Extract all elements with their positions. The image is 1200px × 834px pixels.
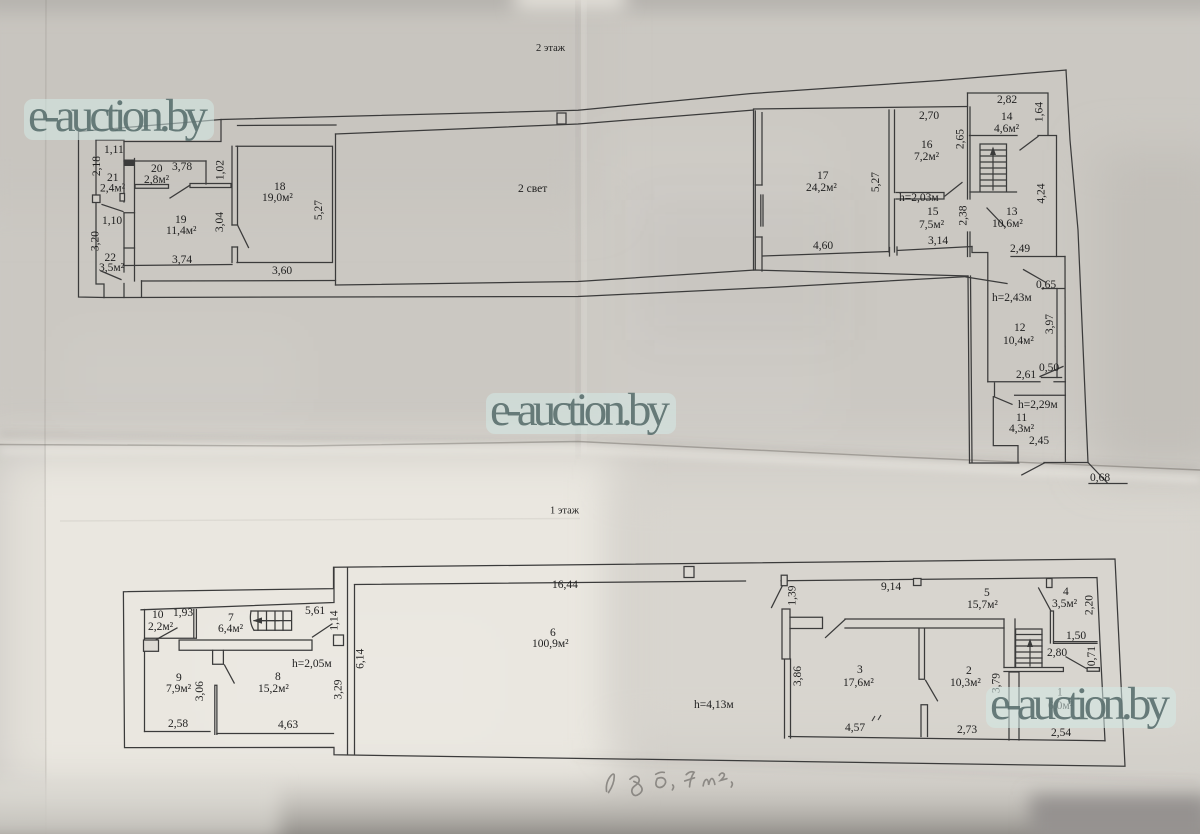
svg-text:15: 15 [927,206,939,218]
svg-text:h=2,29м: h=2,29м [1018,399,1058,411]
svg-text:17: 17 [817,170,829,182]
svg-text:5: 5 [984,587,990,599]
svg-text:3,14: 3,14 [928,235,948,247]
svg-text:4,3м²: 4,3м² [1009,423,1035,435]
svg-text:1,93: 1,93 [173,607,193,619]
svg-text:10,6м²: 10,6м² [992,218,1023,230]
svg-text:2 этаж: 2 этаж [536,43,566,54]
svg-text:16,44: 16,44 [552,579,578,591]
svg-text:0,65: 0,65 [1036,279,1056,291]
svg-text:4,6м²: 4,6м² [994,123,1020,135]
svg-text:3,60: 3,60 [272,265,292,277]
svg-text:2 свет: 2 свет [518,183,547,195]
svg-text:h=2,05м: h=2,05м [292,658,332,670]
svg-text:h=2,43м: h=2,43м [992,292,1032,304]
svg-text:2,49: 2,49 [1010,243,1030,255]
svg-text:17,6м²: 17,6м² [843,677,874,689]
svg-text:2,45: 2,45 [1029,435,1049,447]
svg-text:2,61: 2,61 [1016,369,1036,381]
svg-text:13: 13 [1006,206,1018,218]
svg-text:16: 16 [921,139,933,151]
svg-text:15,2м²: 15,2м² [258,683,289,695]
svg-text:3: 3 [857,664,863,676]
svg-text:6,4м²: 6,4м² [218,623,244,635]
svg-text:19,0м²: 19,0м² [262,192,293,204]
svg-text:5,61: 5,61 [305,605,325,617]
svg-text:2: 2 [966,665,972,677]
svg-text:2,18: 2,18 [91,156,103,176]
svg-text:8: 8 [275,671,281,683]
svg-text:2,20: 2,20 [1083,595,1095,615]
svg-text:10,4м²: 10,4м² [1003,335,1034,347]
svg-text:6,14: 6,14 [355,648,367,668]
svg-text:15,7м²: 15,7м² [967,599,998,611]
svg-text:1,11: 1,11 [104,144,124,156]
svg-text:11,4м²: 11,4м² [166,225,197,237]
svg-text:24,2м²: 24,2м² [806,182,837,194]
svg-text:1,02: 1,02 [215,160,227,180]
svg-text:4,24: 4,24 [1036,183,1048,203]
svg-text:3,29: 3,29 [333,679,345,699]
svg-text:7,5м²: 7,5м² [919,219,945,231]
svg-text:e-auction.by: e-auction.by [990,678,1171,730]
svg-text:3,78: 3,78 [172,161,192,173]
svg-text:0,50: 0,50 [1039,362,1059,374]
svg-text:1 этаж: 1 этаж [550,506,580,517]
svg-text:3,74: 3,74 [172,254,192,266]
svg-text:e-auction.by: e-auction.by [490,384,671,436]
svg-text:3,5м²: 3,5м² [99,262,125,274]
svg-text:100,9м²: 100,9м² [532,638,569,650]
svg-text:2,2м²: 2,2м² [148,621,174,633]
svg-text:2,8м²: 2,8м² [144,174,170,186]
svg-text:h=4,13м: h=4,13м [694,699,734,711]
svg-text:2,58: 2,58 [168,718,188,730]
svg-text:4,60: 4,60 [813,240,833,252]
svg-text:4,63: 4,63 [278,719,298,731]
svg-text:2,73: 2,73 [957,724,977,736]
svg-text:10,3м²: 10,3м² [950,677,981,689]
svg-text:2,80: 2,80 [1047,647,1067,659]
svg-text:3,86: 3,86 [792,666,804,686]
svg-text:2,65: 2,65 [954,129,966,149]
svg-text:14: 14 [1001,111,1013,123]
svg-text:4: 4 [1063,586,1069,598]
svg-text:5,27: 5,27 [870,172,882,192]
svg-text:0,71: 0,71 [1086,646,1098,666]
svg-text:9,14: 9,14 [881,581,901,593]
svg-text:2,70: 2,70 [919,110,939,122]
svg-text:3,20: 3,20 [90,231,102,251]
svg-text:1,39: 1,39 [787,585,799,605]
svg-text:3,04: 3,04 [214,212,226,232]
svg-text:3,5м²: 3,5м² [1052,598,1078,610]
svg-text:4,57: 4,57 [845,722,865,734]
svg-text:10: 10 [152,609,164,621]
svg-text:1,14: 1,14 [329,610,341,630]
svg-text:h=2,03м: h=2,03м [899,192,939,204]
svg-text:1,10: 1,10 [102,215,122,227]
svg-text:2,4м²: 2,4м² [100,183,126,195]
svg-text:12: 12 [1014,322,1026,334]
svg-text:7,2м²: 7,2м² [914,151,940,163]
svg-text:e-auction.by: e-auction.by [28,90,209,142]
svg-text:3,06: 3,06 [194,681,206,701]
svg-text:2,38: 2,38 [958,205,970,225]
svg-text:2,82: 2,82 [997,94,1017,106]
svg-text:3,97: 3,97 [1044,314,1056,334]
svg-text:0,68: 0,68 [1090,472,1110,484]
svg-text:7,9м²: 7,9м² [166,683,192,695]
svg-text:1,64: 1,64 [1034,102,1046,122]
svg-text:1,50: 1,50 [1066,630,1086,642]
svg-text:5,27: 5,27 [313,200,325,220]
